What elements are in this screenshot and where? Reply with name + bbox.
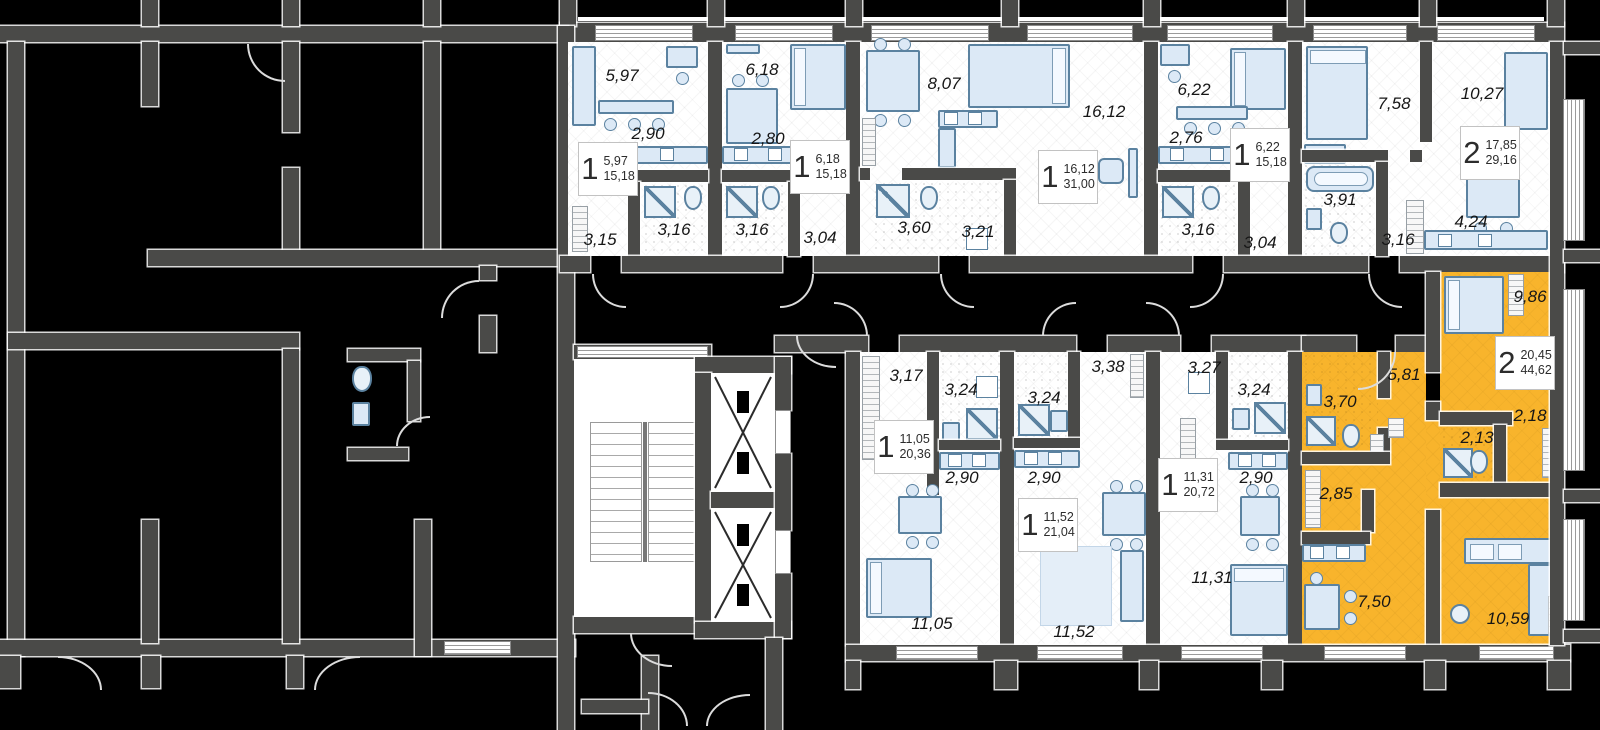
sink-symbol — [352, 402, 370, 426]
stove-symbol — [1262, 454, 1276, 467]
room-area-label: 3,16 — [657, 220, 690, 240]
window — [578, 347, 707, 357]
room-area-label: 3,27 — [1187, 358, 1220, 378]
room-area-label: 3,16 — [735, 220, 768, 240]
wall — [480, 316, 496, 352]
total-area: 21,04 — [1043, 525, 1074, 540]
wall — [408, 361, 420, 421]
wall — [1068, 352, 1080, 444]
wall — [995, 661, 1017, 689]
shower-symbol — [1018, 404, 1050, 436]
room-area-label: 8,07 — [927, 74, 960, 94]
total-area: 31,00 — [1063, 177, 1094, 192]
living-area: 6,22 — [1255, 140, 1286, 155]
radiator-symbol — [1130, 354, 1144, 398]
elevator-door — [775, 530, 791, 574]
door-arc — [796, 336, 836, 368]
wall — [766, 638, 782, 730]
total-area: 44,62 — [1520, 363, 1551, 378]
chair-symbol — [1310, 572, 1323, 585]
wall — [1224, 256, 1368, 272]
wall — [695, 373, 711, 622]
toilet-symbol — [1330, 222, 1348, 244]
living-area: 5,97 — [603, 154, 634, 169]
chair-symbol — [1130, 480, 1143, 493]
wall — [1548, 661, 1570, 689]
room-area-label: 3,91 — [1323, 190, 1356, 210]
shower-symbol — [876, 184, 910, 218]
room-area-label: 3,17 — [889, 366, 922, 386]
apartment-badge-highlighted[interactable]: 220,4544,62 — [1495, 336, 1555, 390]
wall — [1288, 42, 1302, 256]
washing-machine-symbol — [976, 376, 998, 398]
elevator-door — [775, 410, 791, 454]
bed-symbol — [790, 44, 846, 110]
total-area: 15,18 — [815, 167, 846, 182]
wall — [348, 448, 408, 460]
bar-counter-symbol — [1176, 106, 1248, 120]
wall — [846, 352, 860, 645]
wall — [0, 26, 568, 42]
apartment-badge[interactable]: 15,9715,18 — [578, 142, 638, 196]
room-area-label: 16,12 — [1083, 102, 1126, 122]
room-area-label: 3,04 — [1243, 233, 1276, 253]
chair-symbol — [1344, 590, 1357, 603]
wall — [814, 256, 938, 272]
wall — [1420, 0, 1436, 26]
wall — [574, 617, 711, 633]
wall — [1302, 532, 1370, 544]
sink-symbol — [968, 112, 982, 125]
wall — [775, 357, 791, 410]
wall — [283, 168, 299, 258]
wall — [1426, 272, 1440, 372]
shower-symbol — [1443, 448, 1473, 478]
dining-table-symbol — [866, 50, 920, 112]
wall — [142, 0, 158, 26]
room-area-label: 3,15 — [583, 230, 616, 250]
bed-symbol — [1230, 48, 1286, 110]
room-area-label: 11,31 — [1191, 568, 1232, 588]
chair-symbol — [604, 118, 617, 131]
door-arc — [706, 694, 750, 726]
door-arc — [1146, 302, 1180, 336]
toilet-symbol — [1470, 450, 1488, 474]
wall — [1420, 42, 1432, 142]
radiator-symbol — [862, 118, 876, 166]
apartment-badge[interactable]: 16,1815,18 — [790, 140, 850, 194]
room-area-label: 2,90 — [945, 468, 978, 488]
room-area-label: 3,60 — [897, 218, 930, 238]
total-area: 29,16 — [1485, 153, 1516, 168]
rooms-count: 1 — [877, 429, 894, 465]
door-arc — [1368, 274, 1402, 308]
wall — [0, 656, 20, 688]
living-area: 6,18 — [815, 152, 846, 167]
rug-symbol — [1040, 546, 1112, 626]
sink-symbol — [734, 148, 748, 161]
wall — [1144, 42, 1158, 256]
wall — [1288, 352, 1302, 645]
rooms-count: 1 — [581, 151, 598, 187]
wall — [775, 574, 791, 638]
chair-symbol — [906, 536, 919, 549]
wall — [846, 661, 860, 689]
stove-symbol — [1048, 452, 1062, 465]
armchair-symbol — [1098, 158, 1124, 184]
apartment-badge[interactable]: 111,0520,36 — [874, 420, 934, 474]
elevator-cross-icon — [711, 373, 775, 492]
wall — [1000, 352, 1014, 645]
wall — [711, 492, 775, 508]
living-area: 11,52 — [1043, 510, 1074, 525]
room-area-label: 3,38 — [1091, 357, 1124, 377]
wall — [1440, 483, 1557, 497]
total-area: 20,36 — [899, 447, 930, 462]
window — [596, 26, 692, 40]
wall — [860, 168, 870, 180]
room-area-label: 2,18 — [1513, 406, 1546, 426]
balcony-wall — [1564, 42, 1600, 54]
stove-symbol — [1210, 148, 1224, 161]
dining-table-symbol — [898, 496, 942, 534]
stove-symbol — [972, 454, 986, 467]
room-area-label: 3,24 — [1237, 380, 1270, 400]
wall — [1426, 510, 1440, 645]
door-arc — [780, 274, 814, 308]
shower-symbol — [726, 186, 758, 218]
wall — [1426, 402, 1440, 420]
balcony-wall — [1564, 630, 1600, 642]
chair-symbol — [1208, 122, 1221, 135]
chair-symbol — [926, 484, 939, 497]
room-area-label: 10,27 — [1461, 84, 1504, 104]
sink-symbol — [1024, 452, 1038, 465]
wall — [970, 256, 1192, 272]
wall — [560, 256, 590, 272]
chair-symbol — [898, 114, 911, 127]
door-arc — [648, 692, 688, 726]
room-area-label: 2,90 — [1239, 468, 1272, 488]
toilet-symbol — [684, 186, 702, 210]
apartment-badge[interactable]: 111,5221,04 — [1018, 498, 1078, 552]
staircase-flight — [590, 422, 642, 562]
bed-symbol — [866, 558, 932, 618]
wall — [1144, 0, 1160, 26]
sofa-symbol — [1120, 550, 1144, 622]
shower-symbol — [966, 408, 998, 440]
living-area: 11,31 — [1183, 470, 1214, 485]
total-area: 15,18 — [603, 169, 634, 184]
chair-symbol — [676, 72, 689, 85]
room-area-label: 9,86 — [1513, 287, 1546, 307]
bar-counter-symbol — [598, 100, 674, 114]
window — [1564, 290, 1584, 470]
staircase-divider — [643, 422, 647, 562]
stove-symbol — [768, 148, 782, 161]
sink-symbol — [1050, 410, 1068, 432]
shower-symbol — [1162, 186, 1194, 218]
room-area-label: 2,13 — [1460, 428, 1493, 448]
rooms-count: 2 — [1463, 135, 1480, 171]
wall — [1216, 440, 1288, 450]
wall — [1400, 256, 1564, 272]
apartment-badge[interactable]: 116,1231,00 — [1038, 150, 1098, 204]
sink-symbol — [1170, 148, 1184, 161]
bed-symbol — [1306, 46, 1368, 140]
room-area-label: 4,24 — [1454, 212, 1487, 232]
wall — [900, 336, 1076, 352]
shelf-symbol — [726, 44, 760, 54]
living-area: 17,85 — [1485, 138, 1516, 153]
door-arc — [441, 280, 479, 318]
window — [1564, 520, 1584, 620]
sink-symbol — [1310, 546, 1324, 559]
room-area-label: 6,18 — [745, 60, 778, 80]
sink-symbol — [1232, 408, 1250, 430]
dining-table-symbol — [1304, 584, 1340, 630]
chair-symbol — [906, 484, 919, 497]
toilet-symbol — [762, 186, 780, 210]
elevator-shaft — [711, 508, 775, 622]
chair-symbol — [874, 38, 887, 51]
dining-table-symbol — [1102, 492, 1146, 536]
door-arc — [1190, 274, 1224, 308]
wall — [142, 520, 158, 643]
rooms-count: 2 — [1498, 345, 1515, 381]
room-area-label: 7,50 — [1357, 592, 1390, 612]
window — [1182, 647, 1262, 659]
pot-symbol — [1450, 604, 1470, 624]
wall — [902, 168, 1016, 180]
dining-table-symbol — [1240, 496, 1280, 536]
apartment-9-highlighted[interactable] — [1426, 420, 1440, 510]
room-area-label: 2,80 — [751, 129, 784, 149]
chair-symbol — [898, 38, 911, 51]
chair-symbol — [1344, 612, 1357, 625]
door-arc — [314, 656, 360, 690]
sofa-symbol — [1464, 538, 1557, 564]
wall — [8, 333, 299, 349]
total-area: 20,72 — [1183, 485, 1214, 500]
door-arc — [58, 656, 102, 690]
rooms-count: 1 — [1161, 467, 1178, 503]
toilet-symbol — [920, 186, 938, 210]
room-area-label: 11,05 — [911, 614, 952, 634]
window — [1168, 26, 1272, 40]
balcony-wall — [1564, 250, 1600, 262]
wall — [148, 250, 575, 266]
room-area-label: 2,90 — [1027, 468, 1060, 488]
rooms-count: 1 — [1233, 137, 1250, 173]
balcony-wall — [1564, 490, 1600, 502]
door-arc — [940, 274, 974, 308]
elevator-cross-icon — [711, 508, 775, 622]
chair-symbol — [1246, 538, 1259, 551]
window — [1028, 26, 1132, 40]
wall — [939, 440, 1000, 450]
room-area-label: 3,21 — [961, 222, 994, 242]
room-area-label: 11,52 — [1053, 622, 1094, 642]
room-area-label: 2,90 — [631, 124, 664, 144]
door-arc — [834, 302, 868, 336]
shower-symbol — [1254, 402, 1286, 434]
kitchen-counter-symbol — [938, 128, 956, 168]
room-area-label: 3,24 — [1027, 388, 1060, 408]
wall — [1212, 336, 1305, 352]
wall — [142, 656, 160, 688]
total-area: 15,18 — [1255, 155, 1286, 170]
room-area-label: 3,04 — [803, 228, 836, 248]
wall — [424, 42, 440, 250]
door-arc — [592, 274, 626, 308]
room-area-label: 5,97 — [605, 66, 638, 86]
wall — [1002, 0, 1018, 26]
sink-symbol — [1238, 454, 1252, 467]
bed-symbol — [1444, 276, 1504, 334]
wall — [846, 0, 862, 26]
room-area-label: 2,76 — [1169, 128, 1202, 148]
rooms-count: 1 — [1041, 159, 1058, 195]
window — [1438, 26, 1534, 40]
wall — [480, 266, 496, 280]
bed-symbol — [1230, 564, 1288, 636]
chair-symbol — [732, 74, 745, 87]
rooms-count: 1 — [1021, 507, 1038, 543]
bathtub-symbol — [1306, 166, 1374, 192]
chair-symbol — [1266, 538, 1279, 551]
wall — [283, 0, 299, 26]
living-area: 16,12 — [1063, 162, 1094, 177]
sink-symbol — [1306, 208, 1322, 230]
room-area-label: 6,22 — [1177, 80, 1210, 100]
chair-symbol — [926, 536, 939, 549]
wall — [283, 349, 299, 643]
wall — [1302, 150, 1388, 162]
window — [1564, 100, 1584, 240]
room-area-label: 2,85 — [1319, 484, 1352, 504]
wall — [1004, 180, 1016, 256]
window — [1038, 647, 1122, 659]
wall — [582, 700, 648, 713]
apartment-badge[interactable]: 111,3120,72 — [1158, 458, 1218, 512]
wall — [1302, 452, 1390, 464]
toilet-symbol — [352, 366, 372, 392]
door-arc — [630, 633, 672, 667]
door-arc — [1042, 302, 1076, 336]
wall — [708, 0, 724, 26]
shower-symbol — [1306, 416, 1336, 446]
staircase-flight — [648, 422, 700, 562]
wall — [560, 0, 576, 26]
living-area: 11,05 — [899, 432, 930, 447]
window — [872, 26, 988, 40]
rooms-count: 1 — [793, 149, 810, 185]
wall — [1302, 336, 1356, 352]
bed-symbol — [968, 44, 1070, 108]
sink-symbol — [948, 454, 962, 467]
wall — [8, 42, 24, 656]
wall — [628, 170, 708, 182]
toilet-symbol — [1202, 186, 1220, 210]
sink-symbol — [1306, 384, 1322, 406]
stove-symbol — [944, 112, 958, 125]
chair-symbol — [1110, 480, 1123, 493]
shower-symbol — [644, 186, 676, 218]
wall — [142, 42, 158, 106]
wall — [1410, 150, 1422, 162]
wall — [1494, 425, 1506, 483]
sofa-symbol — [1504, 52, 1548, 130]
desk-symbol — [666, 46, 698, 68]
apartment-badge[interactable]: 217,8529,16 — [1460, 126, 1520, 180]
window — [736, 26, 832, 40]
wall — [708, 42, 722, 256]
room-area-label: 7,58 — [1377, 94, 1410, 114]
window — [1314, 26, 1406, 40]
wall — [348, 349, 420, 361]
window — [1480, 647, 1553, 659]
window — [897, 647, 977, 659]
floor-plan: 15,9715,18 16,1815,18 116,1231,00 16,221… — [0, 0, 1600, 730]
wall — [1425, 661, 1445, 689]
stove-symbol — [660, 148, 674, 161]
room-area-label: 3,16 — [1181, 220, 1214, 240]
wall — [775, 454, 791, 530]
living-area: 20,45 — [1520, 348, 1551, 363]
wall — [424, 0, 440, 26]
wall — [1262, 661, 1282, 689]
room-area-label: 10,59 — [1487, 609, 1530, 629]
door-arc — [396, 416, 430, 446]
wall — [415, 520, 431, 656]
wall — [1108, 336, 1180, 352]
room-area-label: 3,70 — [1323, 392, 1356, 412]
toilet-symbol — [1342, 424, 1360, 448]
elevator-shaft — [711, 373, 775, 492]
wall — [1140, 661, 1158, 689]
sofa-symbol — [572, 46, 596, 126]
sink-symbol — [1438, 234, 1452, 247]
wall — [287, 656, 303, 688]
wall — [1288, 0, 1304, 26]
wall — [283, 42, 299, 132]
stove-symbol — [1336, 546, 1350, 559]
wall — [622, 256, 782, 272]
room-area-label: 3,16 — [1381, 230, 1414, 250]
wall — [1548, 0, 1564, 26]
window — [1325, 647, 1405, 659]
apartment-badge[interactable]: 16,2215,18 — [1230, 128, 1290, 182]
wall — [1362, 490, 1374, 532]
stove-symbol — [1478, 234, 1492, 247]
tv-cabinet-symbol — [1128, 148, 1138, 198]
wall — [1014, 438, 1080, 448]
wall — [722, 170, 800, 182]
wall — [1440, 412, 1512, 425]
door-arc — [247, 44, 285, 82]
desk-symbol — [1160, 44, 1190, 66]
radiator-symbol — [1370, 434, 1384, 452]
window — [445, 642, 510, 654]
room-area-label: 3,24 — [944, 380, 977, 400]
radiator-symbol — [1388, 418, 1404, 438]
